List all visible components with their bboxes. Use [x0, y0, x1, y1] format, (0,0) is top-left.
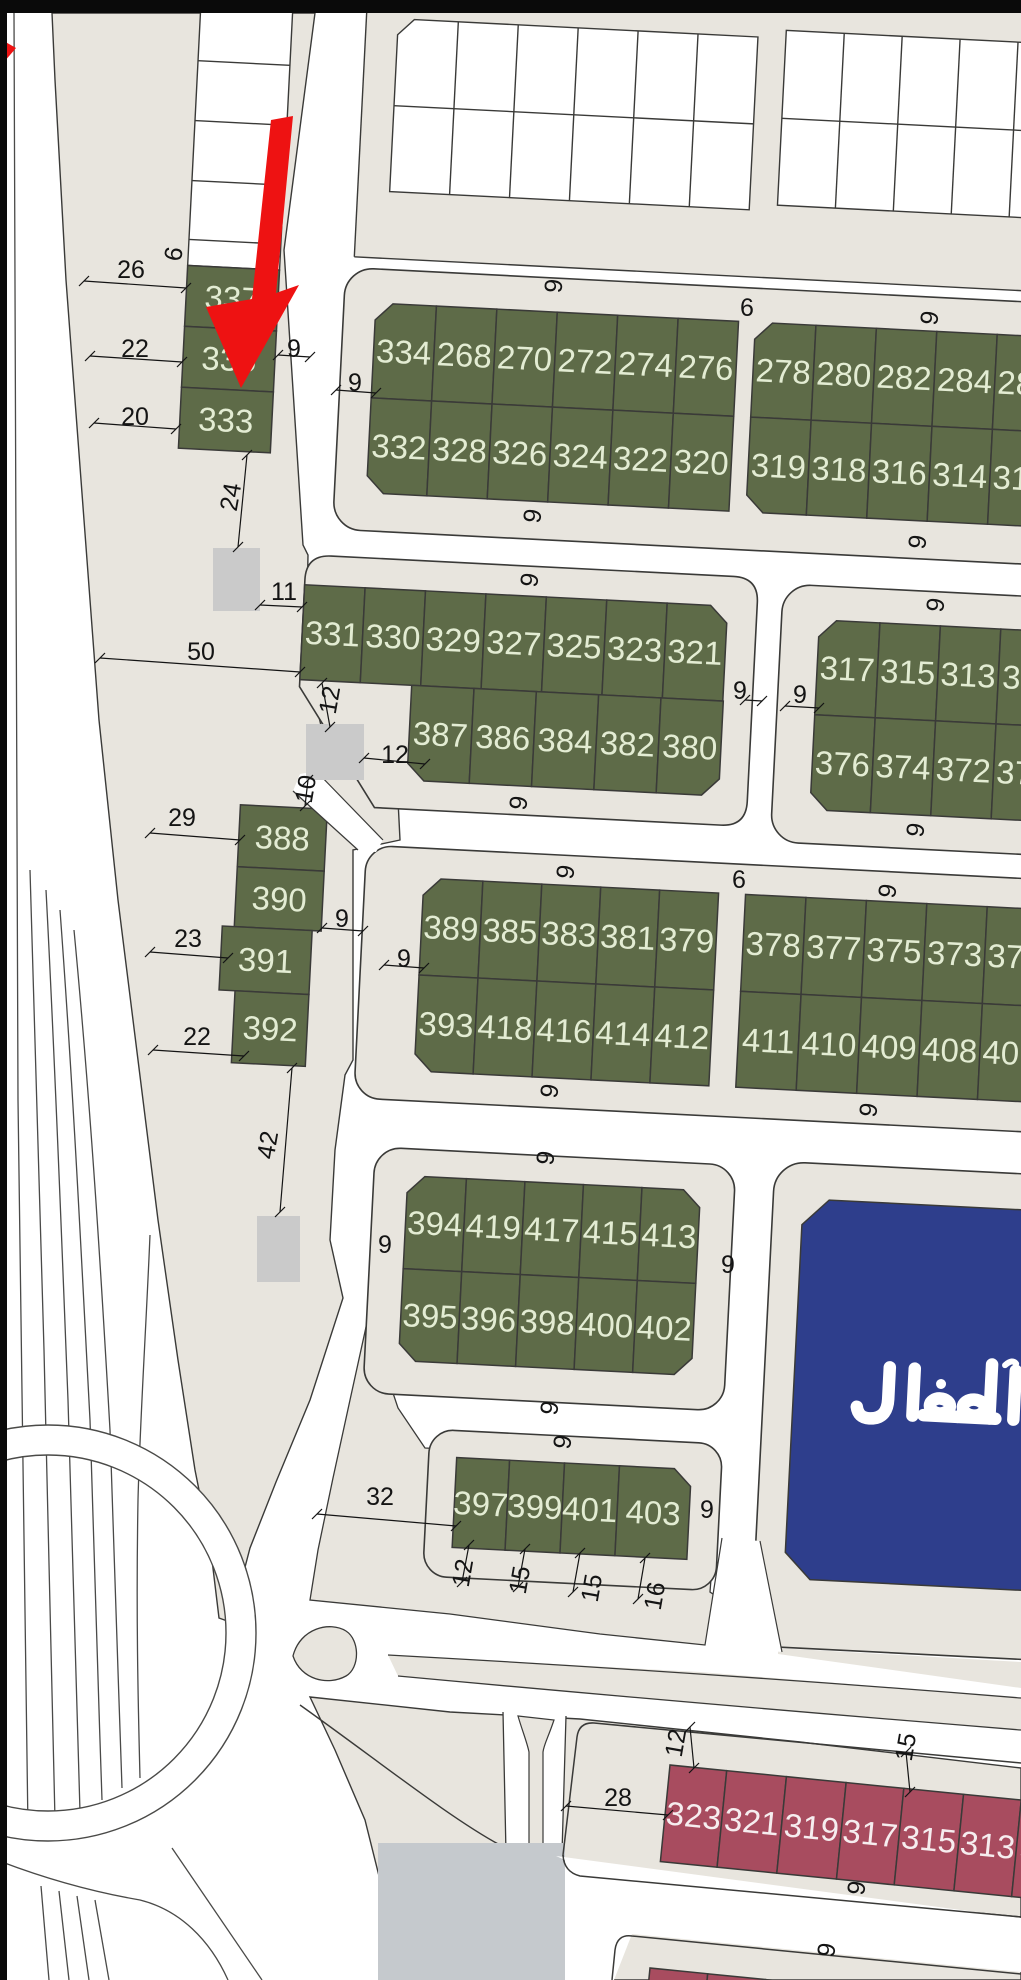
svg-text:328: 328	[431, 430, 488, 470]
svg-text:6: 6	[732, 866, 746, 894]
svg-text:375: 375	[866, 931, 923, 971]
svg-text:314: 314	[931, 455, 988, 495]
svg-text:386: 386	[474, 718, 531, 758]
svg-text:276: 276	[678, 347, 735, 387]
svg-text:382: 382	[599, 724, 656, 764]
svg-text:396: 396	[460, 1299, 517, 1339]
svg-text:324: 324	[552, 436, 609, 476]
svg-text:374: 374	[875, 747, 932, 787]
svg-text:280: 280	[815, 354, 872, 394]
svg-text:6: 6	[740, 294, 754, 322]
svg-text:381: 381	[599, 917, 656, 957]
svg-text:12: 12	[314, 684, 346, 716]
svg-text:395: 395	[402, 1296, 459, 1336]
svg-text:274: 274	[617, 344, 674, 384]
svg-text:409: 409	[861, 1027, 918, 1067]
svg-text:371: 371	[987, 937, 1021, 977]
svg-text:15: 15	[890, 1731, 922, 1763]
svg-text:319: 319	[750, 446, 807, 486]
svg-text:329: 329	[425, 620, 482, 660]
svg-text:32: 32	[366, 1483, 394, 1511]
svg-text:325: 325	[546, 626, 603, 666]
svg-text:22: 22	[183, 1023, 211, 1051]
svg-text:376: 376	[814, 744, 871, 784]
svg-text:378: 378	[745, 925, 802, 965]
svg-text:9: 9	[335, 905, 349, 933]
svg-text:377: 377	[805, 928, 862, 968]
svg-text:15: 15	[504, 1564, 536, 1596]
svg-text:380: 380	[661, 727, 718, 767]
svg-text:11: 11	[271, 578, 297, 606]
svg-text:313: 313	[940, 655, 997, 695]
svg-text:388: 388	[254, 818, 311, 858]
svg-text:12: 12	[447, 1557, 479, 1589]
svg-text:278: 278	[755, 351, 812, 391]
svg-text:418: 418	[477, 1008, 534, 1048]
svg-text:419: 419	[465, 1207, 522, 1247]
svg-text:322: 322	[612, 439, 669, 479]
svg-text:390: 390	[251, 879, 308, 919]
svg-text:9: 9	[721, 1251, 735, 1279]
svg-text:414: 414	[594, 1014, 651, 1054]
svg-text:270: 270	[496, 338, 553, 378]
svg-text:315: 315	[879, 652, 936, 692]
svg-text:397: 397	[452, 1484, 509, 1524]
svg-text:12: 12	[381, 741, 409, 769]
svg-text:389: 389	[423, 908, 480, 948]
svg-text:373: 373	[926, 934, 983, 974]
svg-text:29: 29	[168, 804, 196, 832]
svg-text:393: 393	[418, 1005, 475, 1045]
svg-text:323: 323	[664, 1794, 722, 1836]
svg-text:317: 317	[841, 1812, 899, 1854]
svg-text:372: 372	[935, 750, 992, 790]
svg-text:327: 327	[485, 623, 542, 663]
svg-text:313: 313	[958, 1824, 1016, 1866]
svg-text:315: 315	[900, 1818, 958, 1860]
svg-text:9: 9	[378, 1231, 392, 1259]
svg-text:20: 20	[121, 403, 149, 431]
svg-text:330: 330	[365, 617, 422, 657]
svg-text:282: 282	[876, 357, 933, 397]
svg-text:9: 9	[733, 677, 747, 705]
svg-text:384: 384	[537, 721, 594, 761]
svg-text:16: 16	[639, 1580, 671, 1612]
svg-text:318: 318	[811, 449, 868, 489]
svg-text:321: 321	[723, 1800, 781, 1842]
svg-text:391: 391	[237, 940, 294, 980]
svg-text:9: 9	[700, 1496, 714, 1524]
svg-text:320: 320	[673, 442, 730, 482]
svg-text:403: 403	[625, 1493, 682, 1533]
svg-text:331: 331	[304, 614, 361, 654]
svg-text:286: 286	[997, 364, 1021, 404]
svg-text:9: 9	[539, 278, 568, 295]
svg-text:383: 383	[540, 914, 597, 954]
svg-text:413: 413	[640, 1216, 697, 1256]
svg-text:333: 333	[197, 400, 254, 440]
svg-text:9: 9	[287, 335, 301, 363]
svg-text:272: 272	[557, 341, 614, 381]
svg-text:24: 24	[215, 481, 247, 513]
svg-text:408: 408	[921, 1030, 978, 1070]
svg-text:9: 9	[348, 369, 362, 397]
svg-text:385: 385	[481, 911, 538, 951]
svg-text:399: 399	[506, 1487, 563, 1527]
svg-text:416: 416	[536, 1011, 593, 1051]
svg-text:9: 9	[397, 945, 411, 973]
svg-text:379: 379	[658, 920, 715, 960]
svg-text:392: 392	[242, 1009, 299, 1049]
svg-text:26: 26	[117, 256, 145, 284]
svg-text:28: 28	[604, 1784, 632, 1812]
svg-text:319: 319	[782, 1806, 840, 1848]
svg-text:402: 402	[636, 1308, 693, 1348]
svg-text:15: 15	[576, 1572, 608, 1604]
svg-text:401: 401	[561, 1489, 618, 1529]
svg-text:321: 321	[667, 632, 724, 672]
svg-text:387: 387	[412, 714, 469, 754]
svg-text:323: 323	[606, 629, 663, 669]
svg-text:23: 23	[174, 925, 202, 953]
svg-text:10: 10	[290, 773, 322, 805]
svg-text:398: 398	[519, 1302, 576, 1342]
svg-text:412: 412	[653, 1017, 710, 1057]
svg-text:407: 407	[982, 1033, 1021, 1073]
svg-text:268: 268	[436, 335, 493, 375]
svg-text:316: 316	[871, 452, 928, 492]
svg-text:311: 311	[1001, 658, 1021, 698]
svg-text:312: 312	[992, 458, 1021, 498]
svg-text:22: 22	[121, 335, 149, 363]
svg-text:394: 394	[406, 1204, 463, 1244]
svg-text:334: 334	[375, 332, 432, 372]
svg-text:411: 411	[741, 1021, 795, 1061]
svg-text:370: 370	[995, 753, 1021, 793]
svg-text:284: 284	[936, 361, 993, 401]
svg-text:317: 317	[819, 649, 876, 689]
svg-text:326: 326	[491, 433, 548, 473]
svg-text:415: 415	[582, 1213, 639, 1253]
svg-text:410: 410	[800, 1024, 857, 1064]
svg-text:332: 332	[371, 427, 428, 467]
svg-text:42: 42	[252, 1129, 284, 1161]
svg-text:9: 9	[793, 681, 807, 709]
svg-text:50: 50	[187, 638, 215, 666]
svg-text:12: 12	[660, 1727, 692, 1759]
svg-text:400: 400	[577, 1305, 634, 1345]
svg-text:417: 417	[523, 1210, 580, 1250]
